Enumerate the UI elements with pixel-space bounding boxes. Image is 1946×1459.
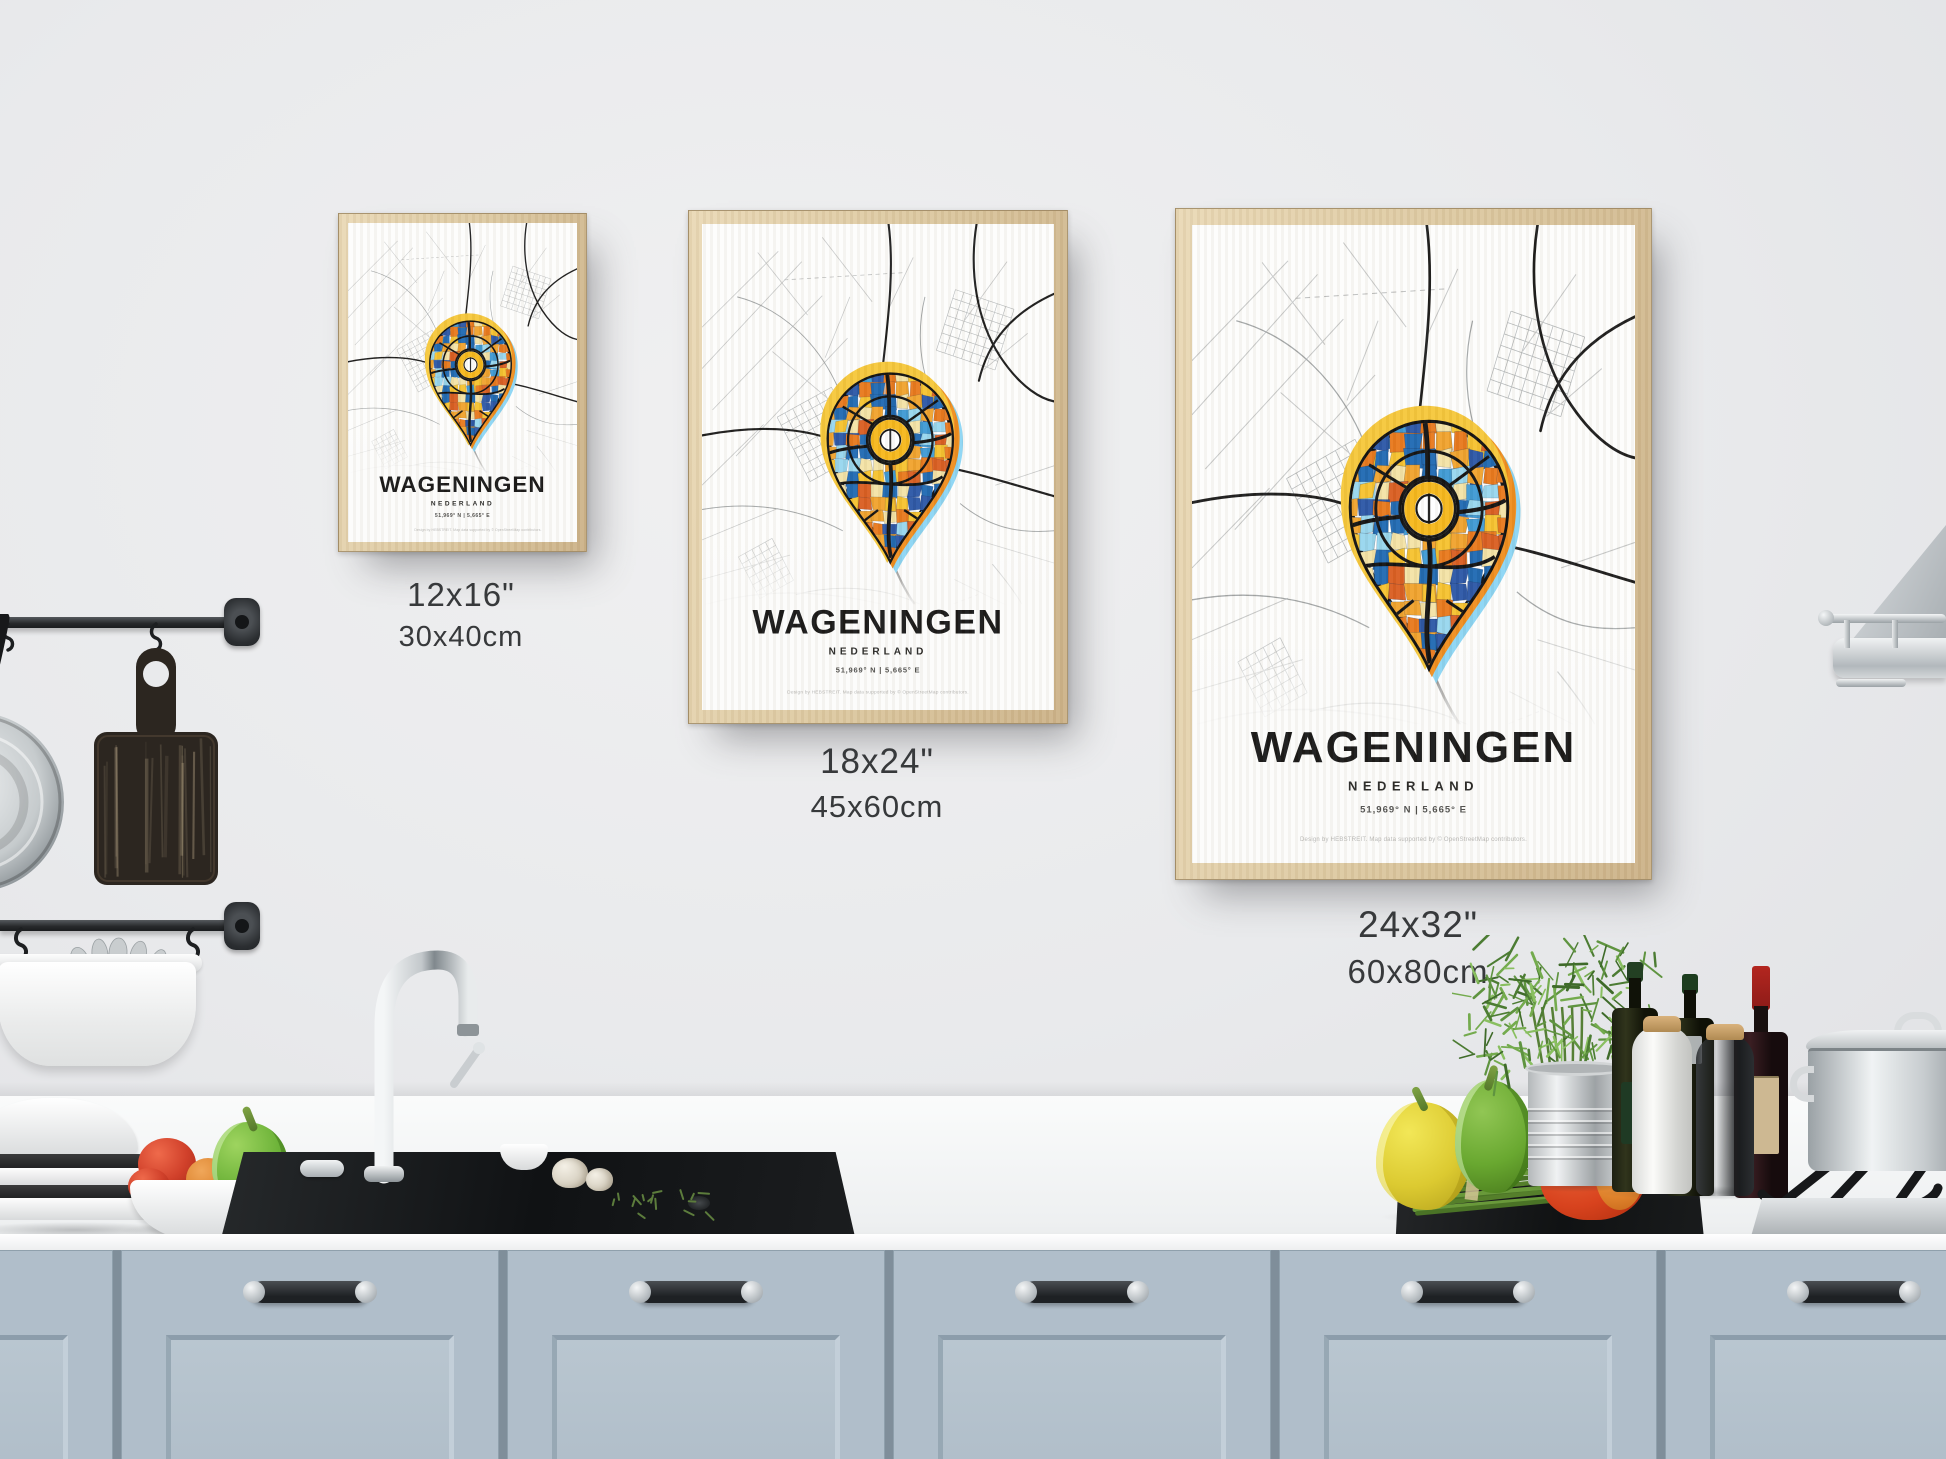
poster-title: WAGENINGEN: [702, 603, 1054, 642]
utensil-bucket: [0, 962, 196, 1066]
cabinet-door: [507, 1250, 885, 1459]
cabinet-door: [121, 1250, 499, 1459]
cabinet-door: [1279, 1250, 1657, 1459]
tin-can-planter: [1528, 1068, 1624, 1186]
cabinet-panel: [938, 1335, 1226, 1459]
size-inches: 12x16": [311, 576, 611, 614]
poster-frame-24x32: WAGENINGEN NEDERLAND 51,969° N | 5,665° …: [1175, 208, 1652, 880]
cabinet-panel: [1710, 1335, 1946, 1459]
rail-mount: [224, 598, 260, 646]
poster-credit: Design by HEBSTREIT. Map data supported …: [1247, 835, 1579, 842]
pepper-grinder: [1696, 1034, 1754, 1196]
size-cm: 30x40cm: [311, 621, 611, 654]
stock-pot: [1806, 1014, 1946, 1174]
grinder-cap: [1643, 1016, 1681, 1032]
size-cm: 45x60cm: [727, 789, 1027, 825]
range-hood-rail-post: [1844, 620, 1850, 648]
poster-frame-12x16: WAGENINGEN NEDERLAND 51,969° N | 5,665° …: [338, 213, 587, 552]
poster-subtitle: NEDERLAND: [1192, 779, 1635, 794]
poster-coordinates: 51,969° N | 5,665° E: [365, 513, 560, 518]
wall-rail: [0, 920, 258, 931]
range-hood-lower-bar: [1836, 679, 1906, 687]
poster-credit: Design by HEBSTREIT. Map data supported …: [414, 528, 510, 532]
range-hood-rail-finial: [1818, 610, 1834, 626]
cabinet-handle: [251, 1281, 369, 1303]
herb-sprinkle: [596, 1178, 726, 1222]
poster-coordinates: 51,969° N | 5,665° E: [1192, 805, 1635, 816]
size-inches: 18x24": [727, 742, 1027, 782]
pot-body: [1808, 1048, 1946, 1171]
cabinet-handle: [637, 1281, 755, 1303]
poster-subtitle: NEDERLAND: [702, 646, 1054, 657]
cabinet-handle: [1795, 1281, 1913, 1303]
cabinet-handle: [1409, 1281, 1527, 1303]
range-hood-rail-post: [1892, 620, 1898, 648]
cabinet-door: [893, 1250, 1271, 1459]
cabinet-panel: [166, 1335, 454, 1459]
salt-grinder: [1632, 1026, 1692, 1194]
can-ridges: [1528, 1108, 1624, 1162]
size-label-12x16: 12x16" 30x40cm: [311, 576, 611, 654]
black-rim-plate: [0, 1154, 146, 1169]
cabinet-row: [0, 1250, 1946, 1459]
faucet: [338, 908, 488, 1188]
poster-credit: Design by HEBSTREIT. Map data supported …: [772, 689, 983, 694]
poster-paper: WAGENINGEN NEDERLAND 51,969° N | 5,665° …: [1192, 225, 1635, 863]
poster-frame-18x24: WAGENINGEN NEDERLAND 51,969° N | 5,665° …: [688, 210, 1068, 724]
pot-lid-handle: [1894, 1012, 1942, 1032]
cabinet-panel: [552, 1335, 840, 1459]
kitchen-scene: WAGENINGEN NEDERLAND 51,969° N | 5,665° …: [0, 0, 1946, 1459]
size-label-18x24: 18x24" 45x60cm: [727, 742, 1027, 825]
garlic: [552, 1158, 588, 1188]
poster-paper: WAGENINGEN NEDERLAND 51,969° N | 5,665° …: [348, 223, 577, 542]
poster-subtitle: NEDERLAND: [348, 500, 577, 507]
rail-mount: [224, 902, 260, 950]
poster-coordinates: 51,969° N | 5,665° E: [702, 665, 1054, 674]
cabinet-panel: [0, 1335, 68, 1459]
cabinet-handle: [1023, 1281, 1141, 1303]
poster-title: WAGENINGEN: [348, 472, 577, 498]
poster-paper: WAGENINGEN NEDERLAND 51,969° N | 5,665° …: [702, 224, 1054, 710]
cabinet-panel: [1324, 1335, 1612, 1459]
cutting-board: [92, 642, 220, 887]
grinder-cap: [1706, 1024, 1743, 1040]
cabinet-door: [0, 1250, 113, 1459]
pot-lid: [1806, 1030, 1946, 1050]
cabinet-door: [1665, 1250, 1946, 1459]
wine-foil-cap: [1752, 966, 1770, 1010]
bottle-neck: [1629, 978, 1641, 1012]
poster-title: WAGENINGEN: [1192, 723, 1635, 773]
